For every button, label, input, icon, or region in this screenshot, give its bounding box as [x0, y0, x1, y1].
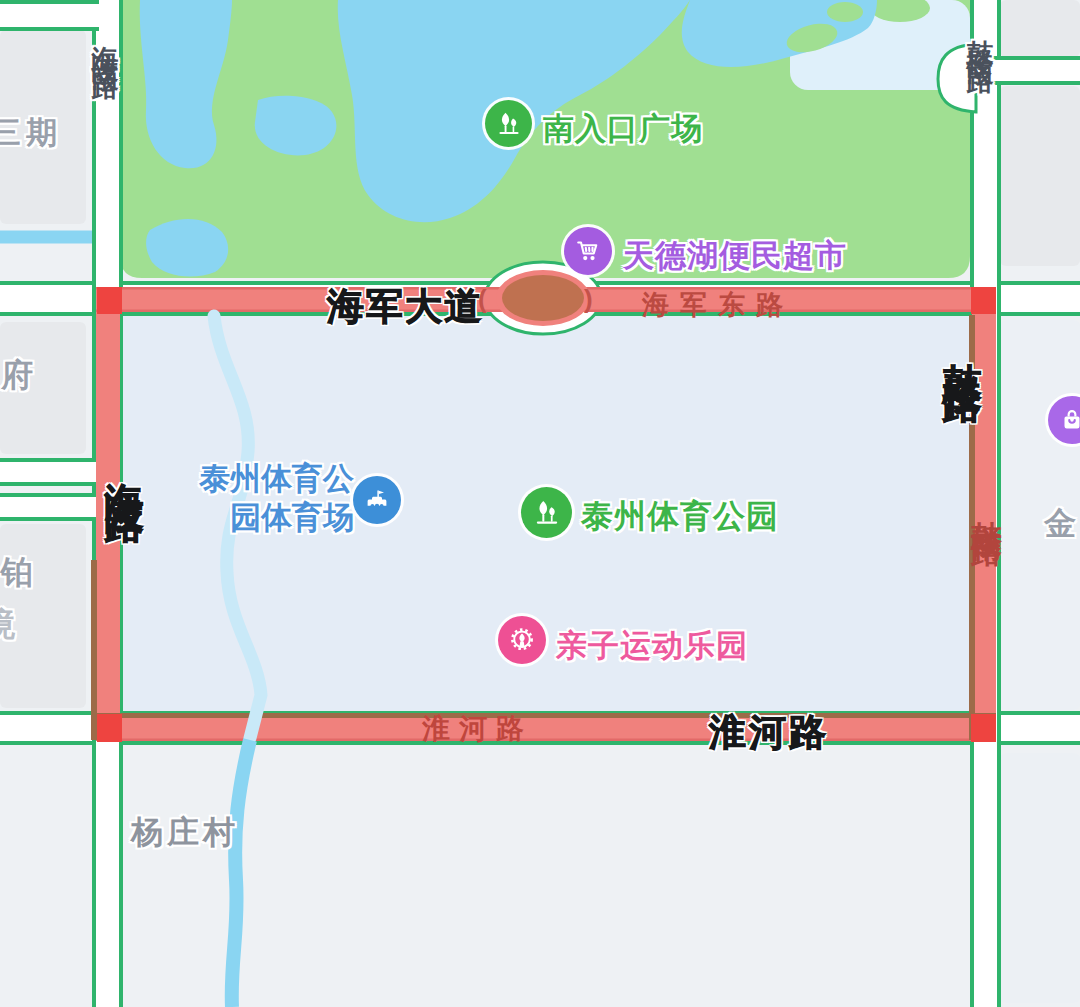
supermarket-cart-icon[interactable]: [564, 227, 612, 275]
casing-bottom: [96, 713, 996, 718]
amusement-wheel-icon[interactable]: [498, 616, 546, 664]
poi-label-stadium-line2: 园体育场: [160, 498, 354, 537]
road-label-gulou-south-top: 鼓楼南路: [962, 18, 998, 54]
channel-islet-2: [827, 2, 863, 22]
road-label-gulou-south-right: 鼓楼南路: [965, 496, 1007, 516]
roundabout-mark-close: ): [584, 284, 593, 315]
area-label-fu: 府: [1, 354, 33, 398]
area-label-bo: 铂: [1, 551, 33, 595]
road-label-haijun-east: 海军东路: [642, 287, 794, 323]
poi-label-sports-park[interactable]: 泰州体育公园: [581, 495, 779, 539]
road-side-topleft: [0, 4, 99, 27]
poi-label-stadium-line1: 泰州体育公: [160, 459, 354, 498]
map-viewport: 三期 海陵南路 鼓楼南路 南入口广场 天德湖便民超市 海军大道 海军东路 ( )…: [0, 0, 1080, 1007]
area-label-jin: 金: [1044, 502, 1076, 546]
corner-top-left: [97, 287, 122, 314]
casing-left: [91, 560, 97, 740]
highlight-left: [96, 288, 120, 740]
area-label-yangzhuang: 杨庄村: [131, 811, 239, 855]
roundabout-mark-open: (: [478, 284, 487, 315]
casing-right: [969, 315, 975, 740]
corner-bottom-left: [97, 714, 122, 742]
road-label-haijun-avenue: 海军大道: [327, 282, 483, 332]
road-side-left-1: [0, 462, 99, 482]
corner-bottom-right: [971, 714, 996, 742]
road-label-hailing: 海陵路: [97, 452, 151, 485]
roundabout-island: [502, 275, 584, 321]
area-label-sanqi: 三期: [0, 112, 62, 154]
corner-top-right: [971, 287, 996, 314]
park-tree-icon[interactable]: [485, 100, 532, 147]
poi-label-supermarket[interactable]: 天德湖便民超市: [623, 235, 847, 277]
poi-label-kids-park[interactable]: 亲子运动乐园: [556, 625, 748, 667]
highlight-bottom: [96, 716, 996, 741]
park-tree-icon[interactable]: [521, 487, 572, 538]
poi-label-stadium[interactable]: 泰州体育公 园体育场: [160, 459, 354, 537]
road-label-hailing-south-top: 海陵南路: [87, 24, 123, 60]
road-label-huaihe-small: 淮河路: [422, 710, 533, 748]
road-label-gulou: 鼓楼路: [935, 332, 989, 365]
road-label-huaihe-bold: 淮河路: [709, 708, 829, 758]
road-side-left-2: [0, 497, 99, 517]
poi-label-south-entrance[interactable]: 南入口广场: [543, 108, 703, 150]
road-side-right-branch: [993, 60, 1080, 81]
area-label-jing: 境: [0, 603, 15, 647]
stadium-icon[interactable]: [353, 476, 401, 524]
